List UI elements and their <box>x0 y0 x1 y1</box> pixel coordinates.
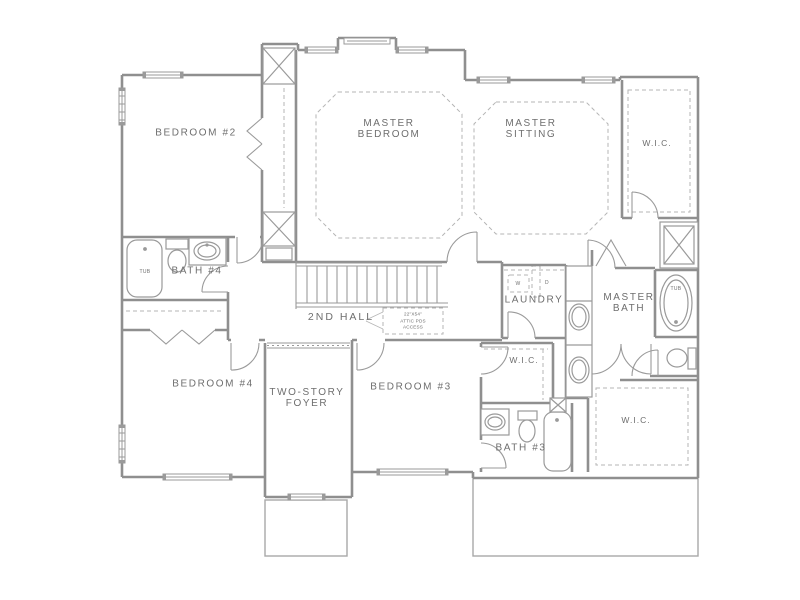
dryer-label: D <box>545 280 549 286</box>
wic-bottom-shelving <box>596 388 688 465</box>
laundry-divider <box>532 266 540 297</box>
room-label-bedroom3: BEDROOM #3 <box>370 382 452 393</box>
balcony-rail <box>267 343 350 348</box>
floorplan-drawing <box>0 0 800 600</box>
bifold-bedroom2-closet <box>247 118 262 170</box>
room-label-bedroom4: BEDROOM #4 <box>172 379 254 390</box>
room-label-master-bath: MASTER BATH <box>603 292 654 314</box>
fixture-label-tub-master: TUB <box>671 286 682 292</box>
shower-icon-master <box>660 222 698 268</box>
stairs <box>296 261 448 309</box>
room-label-laundry: LAUNDRY <box>505 295 564 306</box>
dashed-details <box>126 88 690 465</box>
door-wic-bottom-a <box>591 344 621 374</box>
toilet-icon-master <box>667 348 696 369</box>
wic-master-shelving <box>628 90 690 212</box>
door-wic-bedroom3 <box>481 347 508 374</box>
room-label-2nd-hall: 2ND HALL <box>308 311 374 323</box>
floor-plan: BEDROOM #2 MASTER BEDROOM MASTER SITTING… <box>0 0 800 600</box>
toilet-icon-bath3 <box>518 411 537 442</box>
room-label-bedroom2: BEDROOM #2 <box>155 128 237 139</box>
door-toilet-compartment <box>632 350 658 376</box>
bifold-bedroom4-closet <box>150 330 215 344</box>
room-label-wic-bottom: W.I.C. <box>621 415 650 425</box>
door-master-bedroom <box>447 232 477 262</box>
tray-ceiling-master-bedroom <box>316 92 462 238</box>
bathtub-icon-bath3 <box>544 412 571 471</box>
door-wic-bottom-b <box>621 344 651 374</box>
room-label-bath3: BATH #3 <box>495 443 546 454</box>
roof-below-outline <box>265 478 698 556</box>
fixtures <box>127 48 698 471</box>
chimney <box>263 48 295 260</box>
bathtub-icon-master <box>660 275 692 331</box>
fixture-label-tub-bath4: TUB <box>140 269 151 275</box>
room-label-bath4: BATH #4 <box>171 266 222 277</box>
vanity-master-bath <box>566 266 592 397</box>
sink-icon-bath3 <box>481 409 509 435</box>
chase-box <box>550 398 566 412</box>
room-label-foyer: TWO-STORY FOYER <box>269 387 344 409</box>
door-bedroom2 <box>237 237 263 263</box>
door-bedroom3 <box>357 343 384 370</box>
sink-icon-bath4 <box>189 238 226 265</box>
door-laundry <box>508 312 535 338</box>
room-label-master-sitting: MASTER SITTING <box>505 118 556 140</box>
washer-label: W <box>515 281 520 287</box>
room-label-wic-bedroom3: W.I.C. <box>509 355 538 365</box>
door-bedroom4 <box>231 343 259 370</box>
stair-treads <box>307 266 437 303</box>
room-label-wic-master: W.I.C. <box>642 138 671 148</box>
attic-access-note: 22"X54" ATTIC PDS ACCESS <box>400 311 425 331</box>
room-label-master-bedroom: MASTER BEDROOM <box>358 118 421 140</box>
door-wic-master <box>632 192 658 218</box>
